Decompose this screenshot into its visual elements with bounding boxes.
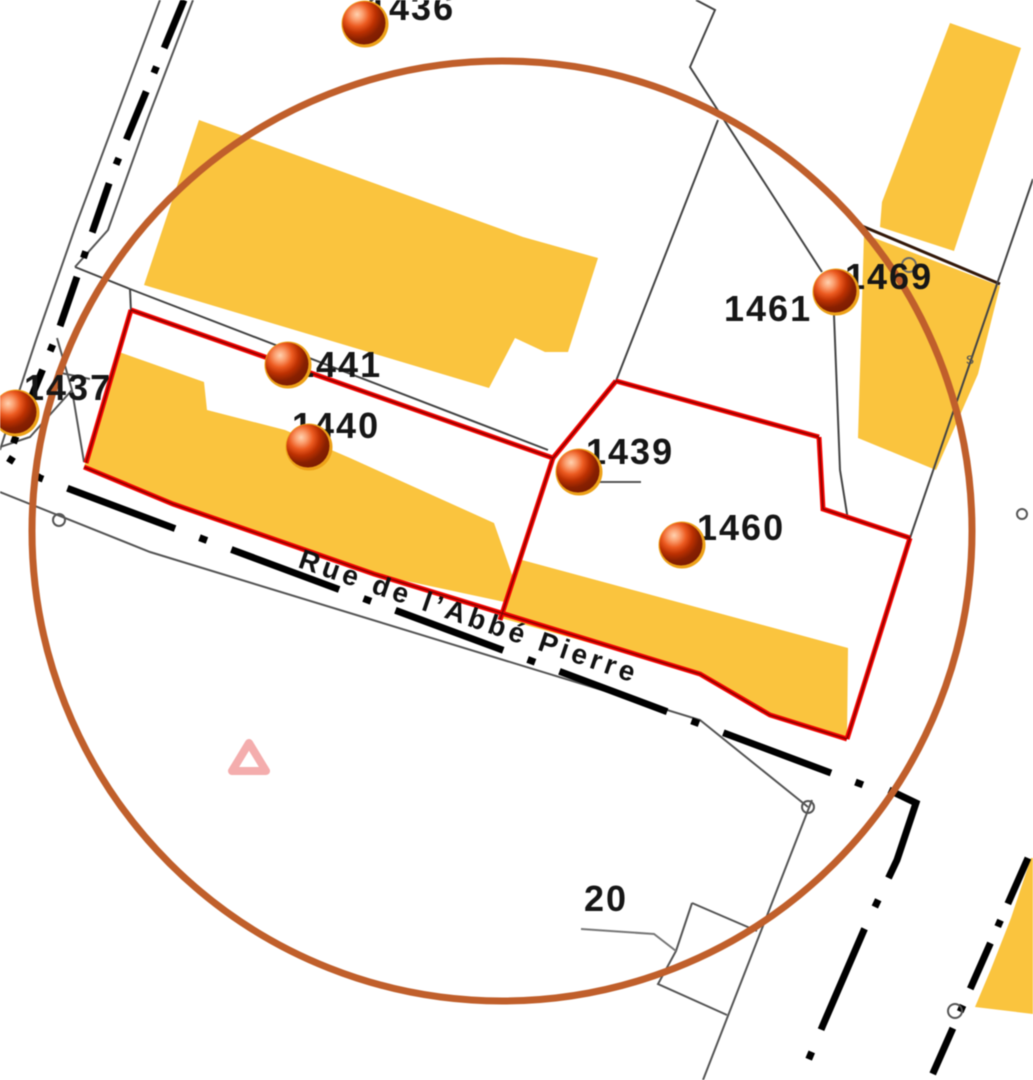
svg-text:1437: 1437: [24, 367, 112, 408]
svg-text:1460: 1460: [697, 507, 785, 548]
svg-text:1461: 1461: [724, 288, 812, 329]
svg-text:20: 20: [584, 878, 628, 919]
svg-text:s: s: [966, 351, 974, 368]
